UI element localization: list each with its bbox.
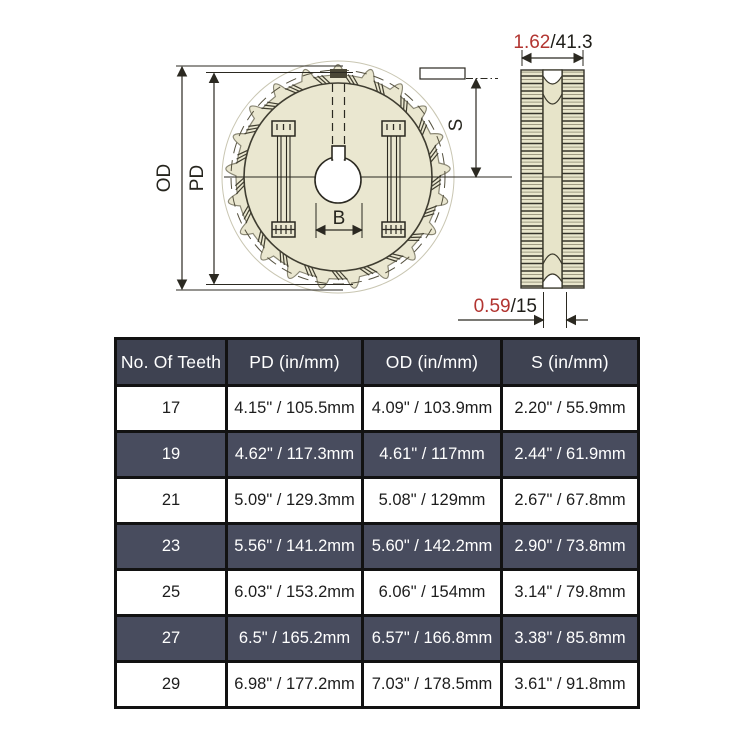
- cell-pd: 5.09" / 129.3mm: [227, 478, 363, 524]
- table-row: 27 6.5" / 165.2mm 6.57" / 166.8mm 3.38" …: [116, 616, 639, 662]
- tooth-reference-rect: [420, 68, 465, 79]
- cell-teeth: 29: [116, 662, 227, 708]
- dim-b-label: B: [333, 208, 346, 229]
- cell-od: 5.08" / 129mm: [363, 478, 502, 524]
- cell-od: 6.57" / 166.8mm: [363, 616, 502, 662]
- header-cell-od: OD (in/mm): [363, 339, 502, 386]
- cell-pd: 6.03" / 153.2mm: [227, 570, 363, 616]
- table-row: 23 5.56" / 141.2mm 5.60" / 142.2mm 2.90"…: [116, 524, 639, 570]
- cell-od: 4.61" / 117mm: [363, 432, 502, 478]
- cell-s: 2.90" / 73.8mm: [502, 524, 639, 570]
- dim-inches-value: 1.62: [513, 32, 550, 53]
- cell-od: 6.06" / 154mm: [363, 570, 502, 616]
- cell-pd: 4.15" / 105.5mm: [227, 386, 363, 432]
- top-tooth-gap: [330, 69, 347, 78]
- header-cell-pd: PD (in/mm): [227, 339, 363, 386]
- dim-s-label: S: [446, 119, 467, 132]
- cell-s: 2.20" / 55.9mm: [502, 386, 639, 432]
- table-header-row: No. Of Teeth PD (in/mm) OD (in/mm) S (in…: [116, 339, 639, 386]
- cell-pd: 5.56" / 141.2mm: [227, 524, 363, 570]
- table-row: 19 4.62" / 117.3mm 4.61" / 117mm 2.44" /…: [116, 432, 639, 478]
- table-row: 25 6.03" / 153.2mm 6.06" / 154mm 3.14" /…: [116, 570, 639, 616]
- cell-teeth: 25: [116, 570, 227, 616]
- cell-teeth: 23: [116, 524, 227, 570]
- cell-od: 7.03" / 178.5mm: [363, 662, 502, 708]
- table-row: 29 6.98" / 177.2mm 7.03" / 178.5mm 3.61"…: [116, 662, 639, 708]
- sprocket-technical-drawing: B OD PD S: [0, 0, 750, 335]
- side-tooth-column-left: [521, 70, 543, 288]
- cell-pd: 6.98" / 177.2mm: [227, 662, 363, 708]
- cell-s: 2.44" / 61.9mm: [502, 432, 639, 478]
- dim-inches-value: 0.59: [474, 296, 511, 317]
- cell-s: 3.38" / 85.8mm: [502, 616, 639, 662]
- cell-teeth: 19: [116, 432, 227, 478]
- header-cell-s: S (in/mm): [502, 339, 639, 386]
- center-bore: [315, 157, 361, 203]
- dim-side-width: 1.62/41.3: [513, 32, 592, 66]
- dim-hub-width-text: 0.59/15: [474, 296, 537, 317]
- cell-teeth: 21: [116, 478, 227, 524]
- header-cell-teeth: No. Of Teeth: [116, 339, 227, 386]
- cell-teeth: 17: [116, 386, 227, 432]
- sprocket-spec-sheet: B OD PD S: [0, 0, 750, 750]
- spec-table: No. Of Teeth PD (in/mm) OD (in/mm) S (in…: [114, 337, 640, 709]
- cell-s: 3.14" / 79.8mm: [502, 570, 639, 616]
- dim-hub-width: 0.59/15: [458, 292, 588, 328]
- cell-s: 3.61" / 91.8mm: [502, 662, 639, 708]
- cell-teeth: 27: [116, 616, 227, 662]
- dim-mm-value: /41.3: [550, 32, 592, 53]
- dim-side-width-text: 1.62/41.3: [513, 32, 592, 53]
- side-tooth-column-right: [562, 70, 584, 288]
- sprocket-side-view: 1.62/41.3 0.59/15: [458, 32, 593, 328]
- table-row: 17 4.15" / 105.5mm 4.09" / 103.9mm 2.20"…: [116, 386, 639, 432]
- keyway-slot-fill: [333, 152, 344, 162]
- sprocket-front-view: B OD PD S: [154, 61, 512, 293]
- cell-pd: 6.5" / 165.2mm: [227, 616, 363, 662]
- side-hub-column: [543, 70, 562, 288]
- dim-pd-label: PD: [187, 165, 208, 191]
- cell-pd: 4.62" / 117.3mm: [227, 432, 363, 478]
- dim-od-label: OD: [154, 164, 175, 193]
- dim-mm-value: /15: [511, 296, 537, 317]
- cell-od: 4.09" / 103.9mm: [363, 386, 502, 432]
- cell-s: 2.67" / 67.8mm: [502, 478, 639, 524]
- table-row: 21 5.09" / 129.3mm 5.08" / 129mm 2.67" /…: [116, 478, 639, 524]
- cell-od: 5.60" / 142.2mm: [363, 524, 502, 570]
